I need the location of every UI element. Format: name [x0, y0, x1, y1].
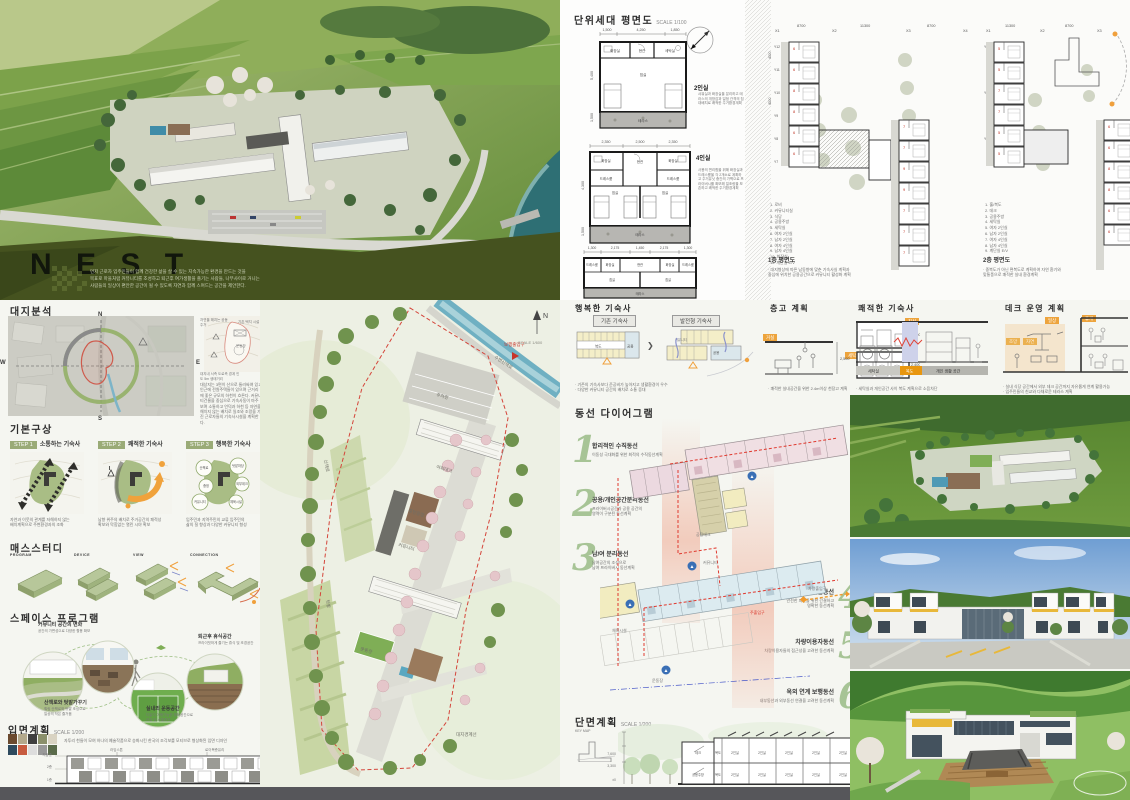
- mass-connection: [198, 564, 260, 604]
- mass-label-view: VIEW: [133, 553, 144, 558]
- sec-room: 2인실: [785, 772, 793, 777]
- room-label: 화장실: [668, 158, 677, 163]
- label-field: 운동장: [652, 677, 663, 683]
- step-badge: STEP 3: [186, 441, 213, 449]
- dimx: 11300: [860, 24, 870, 28]
- happy-left-tag: 기존 기숙사: [593, 315, 636, 327]
- presentation-board: N E S T 먼저 근로자 입주민들이 함께 건강한 삶을 살 수 있는 지속…: [0, 0, 1130, 800]
- floor2-legend: 1. 홀/복도 2. 데크 3. 공용주방 4. 세탁실 5. 여자 2인실 6…: [985, 202, 1008, 254]
- common-label: 공용: [713, 351, 719, 355]
- deck-captions: · 실내 식당 공간에서 외부 데크 공간까지 자유롭게 연계 활용가능 · 입…: [1003, 384, 1128, 395]
- gridy: Y12: [774, 45, 780, 49]
- sec-room: 공용주방: [692, 772, 704, 777]
- gridx: X1: [775, 29, 780, 33]
- render-courtyard: [850, 671, 1130, 800]
- room-label: 드레스룸: [600, 176, 612, 181]
- deck-diagram: [1003, 316, 1128, 380]
- svg-text:▲: ▲: [690, 564, 695, 570]
- label-laundry: 세탁실: [868, 368, 879, 374]
- gridx2: X3: [1097, 29, 1102, 33]
- unit-plan-2person: 1,500 4,250 1,850 5,400 1,500 현관 화장실 세탁실…: [590, 28, 709, 128]
- vignette-rest: [187, 654, 243, 710]
- sec-room: 2인실: [758, 750, 766, 755]
- gridx2: X2: [1040, 29, 1045, 33]
- checker-logo-icon: [52, 266, 92, 292]
- dim: 1,500: [590, 113, 594, 122]
- dim: 2,350: [602, 140, 611, 144]
- room-label: 화장실: [601, 158, 610, 163]
- section-title-floor-height: 층고 계획: [770, 303, 809, 314]
- mass-view: [136, 562, 188, 600]
- floor1-caption: · 대지형상에 따른 남동향에 맞춘 기숙사실 계획과 중심에 위치한 공용공간…: [768, 267, 898, 278]
- section-title-happy: 행복한 기숙사: [575, 303, 632, 314]
- site-analysis-paragraph: 대상지는 3면이 산으로 둘러싸여 있고 인근에 전원주택들이 있으며 근거리에…: [200, 382, 262, 425]
- dim: 2,175: [611, 246, 620, 250]
- dim-living: 2,500: [840, 357, 850, 361]
- gridy: Y7: [774, 160, 778, 164]
- dim: 4,250: [637, 28, 646, 32]
- room-label: 침실: [640, 72, 647, 77]
- section-level-3: ±0: [598, 778, 616, 783]
- gridx: X3: [906, 29, 911, 33]
- dimx2: 11300: [1005, 24, 1015, 28]
- dim: 1,450: [636, 246, 645, 250]
- dim: 2,175: [660, 246, 669, 250]
- dimy: 4300: [768, 51, 772, 59]
- sec-room: 2인실: [839, 750, 847, 755]
- concept-step-3-diagram: 산책로 텃밭마당 외부데크 중정 커뮤니티 체육시설: [186, 452, 260, 514]
- section-level-2: 3,300: [598, 764, 616, 769]
- room-label: 드레스룸: [682, 262, 694, 267]
- sec-room: 데크: [695, 750, 701, 755]
- happy-diagrams: 복도 공용 ❯ 공용 커뮤니티: [575, 328, 765, 378]
- circulation-axon-diagram: ▲▲ ▲▲ 주출입구 차량출입구 커뮤니티 공용데크 체육시설 운동장: [600, 418, 850, 708]
- proposed-dorm-diagram: 공용 커뮤니티: [667, 330, 753, 376]
- site-plan-scale: SCALE 1/600: [518, 340, 543, 345]
- space-desc-1: 공간의 가변성으로 다양한 활용 확보: [38, 629, 98, 634]
- svg-text:▲: ▲: [664, 668, 669, 674]
- label-deck: 공용데크: [696, 531, 711, 537]
- floor1-legend: 1. 로비 2. 커뮤니티실 3. 식당 4. 공용주방 5. 세탁실 6. 여…: [770, 202, 795, 266]
- building-section: 데크 복도 2인실 2인실 2인실 2인실 2인실 공용주방 복도 2인실 2인…: [682, 732, 858, 784]
- sec-room: 2인실: [731, 772, 739, 777]
- compass-s: S: [98, 416, 102, 424]
- render-aerial: [850, 395, 1130, 537]
- elevation-scale: SCALE 1/200: [54, 730, 84, 736]
- concept-step-2-diagram: [98, 452, 172, 514]
- sec-room: 2인실: [812, 750, 820, 755]
- unit2-desc: 샤워실과 화장실을 분리하고 테라스의 개방감과 일정 간격의 침대배치로 쾌적…: [698, 92, 744, 106]
- room-label: 드레스룸: [667, 176, 679, 181]
- floor-height-caption: · 쾌적한 실내공간을 위한 2.4m이상 천장고 계획: [768, 386, 847, 391]
- unit-plan-4person-b: 1,300 2,175 1,450 2,175 1,300 드레스룸 화장실 현…: [584, 246, 696, 298]
- compass-w: W: [0, 360, 6, 368]
- room-label: 화장실: [606, 262, 615, 267]
- sec-room: 2인실: [839, 772, 847, 777]
- label-private: 개인 생활 공간: [936, 368, 961, 374]
- mass-label-program: PROGRAM: [10, 553, 32, 558]
- dim: 1,850: [671, 28, 680, 32]
- step-badge: STEP 2: [98, 441, 125, 449]
- context-label-4: 대지내 서측 도로측 경계 인도 5m 생태거리: [200, 372, 240, 381]
- unit-plan-4person: 2,350 2,500 2,350 4,300 1,500: [581, 140, 711, 243]
- gridy: Y10: [774, 91, 780, 95]
- gridy: Y8: [774, 137, 778, 141]
- common-label: 공용: [627, 345, 634, 349]
- sec-room: 복도: [715, 750, 721, 755]
- bubble-label: 체육시설: [230, 499, 242, 504]
- ground-band: [0, 787, 862, 800]
- space-desc-3: 힐링 산책로와 텃밭 조성으로 일상의 작은 즐거움: [44, 707, 110, 716]
- room-label: 침실: [665, 277, 671, 282]
- site-analysis-map: [8, 316, 194, 416]
- gridx: X2: [832, 29, 837, 33]
- mass-label-device: DEVICE: [74, 553, 90, 558]
- existing-dorm-diagram: 복도 공용 ❯: [577, 332, 654, 364]
- space-label-3: 산책로와 텃밭가꾸기: [44, 700, 87, 707]
- dim: 1,300: [588, 246, 597, 250]
- master-site-plan: 수변산책로 주차장 야외데크 중앙광장 커뮤니티 운동장 텃밭 산책로 보행출입…: [260, 300, 560, 787]
- context-label-1: 자연을 해치는 공동주거: [200, 318, 230, 327]
- render-exterior: [850, 539, 1130, 669]
- bubble-label: 커뮤니티: [194, 499, 206, 504]
- unit-name: 4인실: [696, 154, 711, 162]
- room-label: 침실: [609, 277, 615, 282]
- sec-room: 2인실: [731, 750, 739, 755]
- room-label: 테라스: [635, 232, 644, 237]
- section-drawing: 데크 복도 2인실 2인실 2인실 2인실 2인실 공용주방 복도 2인실 2인…: [618, 722, 862, 788]
- room-label: 테라스: [636, 291, 645, 296]
- dim: 2,350: [669, 140, 678, 144]
- keymap-diagram: [575, 736, 617, 762]
- project-description: 먼저 근로자 입주민들이 함께 건강한 삶을 살 수 있는 지속가능한 환경을 …: [90, 269, 315, 290]
- dimy: 4300: [768, 97, 772, 105]
- mass-study-diagrams: [8, 558, 260, 604]
- bubble-label: 텃밭마당: [232, 463, 244, 468]
- room-label: 현관: [637, 262, 643, 267]
- aerial-pool: [932, 477, 948, 487]
- label-main-entry: 주출입구: [750, 609, 765, 615]
- gridy: Y11: [774, 68, 780, 72]
- step-title: 소통하는 기숙사: [40, 442, 80, 448]
- mass-label-connection: CONNECTION: [190, 553, 219, 558]
- sec-room: 복도: [715, 772, 721, 777]
- section-title-comfort: 쾌적한 기숙사: [858, 303, 915, 314]
- floor2-caption: · 중복도가 아닌 편복도로 계획하여 자연 환기와 맞통풍으로 쾌적한 실내 …: [983, 267, 1113, 278]
- level-1f: 1층: [30, 778, 52, 783]
- happy-right-tag: 발전형 기숙사: [672, 315, 720, 327]
- dim: 1,300: [684, 246, 693, 250]
- sec-room: 2인실: [758, 772, 766, 777]
- space-desc-2: 프라이빗하게 즐기는 휴식 및 조경공간: [198, 641, 258, 646]
- unit-plans-drawing: 1,500 4,250 1,850 5,400 1,500 현관 화장실 세탁실…: [560, 0, 746, 300]
- dimx2: 8700: [1065, 24, 1073, 28]
- dim: 2,500: [636, 140, 645, 144]
- dimx: 8700: [797, 24, 805, 28]
- level-roof: 지붕층: [30, 753, 52, 758]
- space-desc-4: 다같이 이용가능한 체육공간으로 건강 및 소통증진: [146, 713, 212, 722]
- section-level-1: 7,600: [598, 752, 616, 757]
- dim: 5,400: [590, 71, 594, 80]
- site-label-boundary: 대지경계선: [456, 731, 477, 738]
- label-car-entry: 차량출입구: [808, 585, 827, 591]
- svg-text:▲: ▲: [628, 602, 633, 608]
- room-label: 세탁실: [665, 48, 675, 53]
- elevation-desc: 자투리 천들이 모여 하나의 예술작품으로 승화시킨 한국의 조각보를 모티브로…: [64, 738, 274, 743]
- space-label-2: 퇴근후 휴식공간: [198, 634, 232, 641]
- floor2-label: 2층 평면도: [983, 258, 1010, 266]
- concept-step-1-diagram: [10, 452, 84, 514]
- level-2f: 2층: [30, 765, 52, 770]
- room-label: 드레스룸: [586, 262, 598, 267]
- compass-n: N: [98, 312, 102, 320]
- bubble-label: 중정: [203, 483, 209, 488]
- living-section: 2,500: [765, 342, 850, 374]
- vignette-interior: [82, 641, 134, 693]
- gridx2: X1: [986, 29, 991, 33]
- room-label: 화장실: [666, 262, 675, 267]
- compass-icon: [687, 27, 713, 53]
- label-community: 커뮤니티: [703, 559, 718, 565]
- room-label: 화장실: [610, 48, 620, 53]
- pool: [150, 126, 166, 135]
- keymap-label: KEY MAP: [575, 729, 591, 734]
- happy-captions: · 기존의 기숙사보다 준공비가 높아지고 생활환경이 우수 · 다양한 커뮤니…: [575, 382, 668, 393]
- room-label: 현관: [637, 159, 643, 164]
- sec-room: 2인실: [812, 772, 820, 777]
- sec-room: 2인실: [785, 750, 793, 755]
- concept-step-1-caption: 자연과 이웃의 관계를 저해하지 않는 배치계획으로 주변환경과의 조화: [10, 517, 90, 528]
- dim: 1,500: [581, 227, 585, 236]
- comfort-diagram: 세탁실 복도 개인 생활 공간: [856, 318, 988, 380]
- mass-device: [78, 568, 118, 601]
- unit4-desc: 사용의 편리함을 위해 화장실과 드레스룸을 각 2개소로 계획하고 주거유닛 …: [698, 168, 744, 191]
- bubble-label: 산책로: [200, 465, 209, 470]
- corridor-label: 복도: [595, 344, 602, 349]
- step-badge: STEP 1: [10, 441, 37, 449]
- concept-step-3-caption: 입주민과 지역주민의 교류 입주민의 삶의 질 향상과 다양한 커뮤니티 형성: [186, 517, 264, 528]
- room-label: 침실: [662, 190, 668, 195]
- room-label: 침실: [612, 190, 618, 195]
- dim: 4,300: [581, 181, 585, 190]
- gridy: Y9: [774, 114, 778, 118]
- bubble-label: 외부데크: [236, 481, 248, 486]
- overall-floor-plans: X1 X2 X3 X4 8700 11300 8700 X1 X2 X3 113…: [745, 0, 1130, 300]
- space-label-4: 실내외 운동공간: [146, 706, 180, 713]
- step-title: 쾌적한 기숙사: [128, 442, 163, 448]
- dim: 1,500: [603, 28, 612, 32]
- gridx: X4: [963, 29, 968, 33]
- room-label: 현관: [639, 48, 646, 53]
- label-sports: 체육시설: [612, 627, 627, 633]
- label-corridor: 복도: [906, 368, 914, 374]
- unit-name: 2인실: [694, 84, 709, 92]
- north-label: N: [543, 313, 548, 320]
- room-label: 테라스: [638, 118, 649, 123]
- comfort-caption: · 세탁실과 개인공간 사이 복도 계획으로 소음차단: [856, 386, 991, 391]
- dimx: 8700: [927, 24, 935, 28]
- concept-step-2-caption: 남향 위주의 배치로 주거공간의 쾌적성 확보와 막힘없는 열린 시야 확보: [98, 517, 178, 528]
- svg-text:❯: ❯: [647, 341, 654, 350]
- section-title-deck: 데크 운영 계획: [1005, 303, 1066, 314]
- mass-program: [18, 570, 62, 598]
- step-title: 행복한 기숙사: [216, 442, 251, 448]
- space-label-1: 커뮤니티 공간의 변화: [38, 622, 82, 629]
- floor1-label: 1층 평면도: [768, 258, 795, 266]
- context-label-3: 운동장: [236, 344, 246, 349]
- svg-text:▲: ▲: [750, 474, 755, 480]
- compass-e: E: [196, 360, 200, 368]
